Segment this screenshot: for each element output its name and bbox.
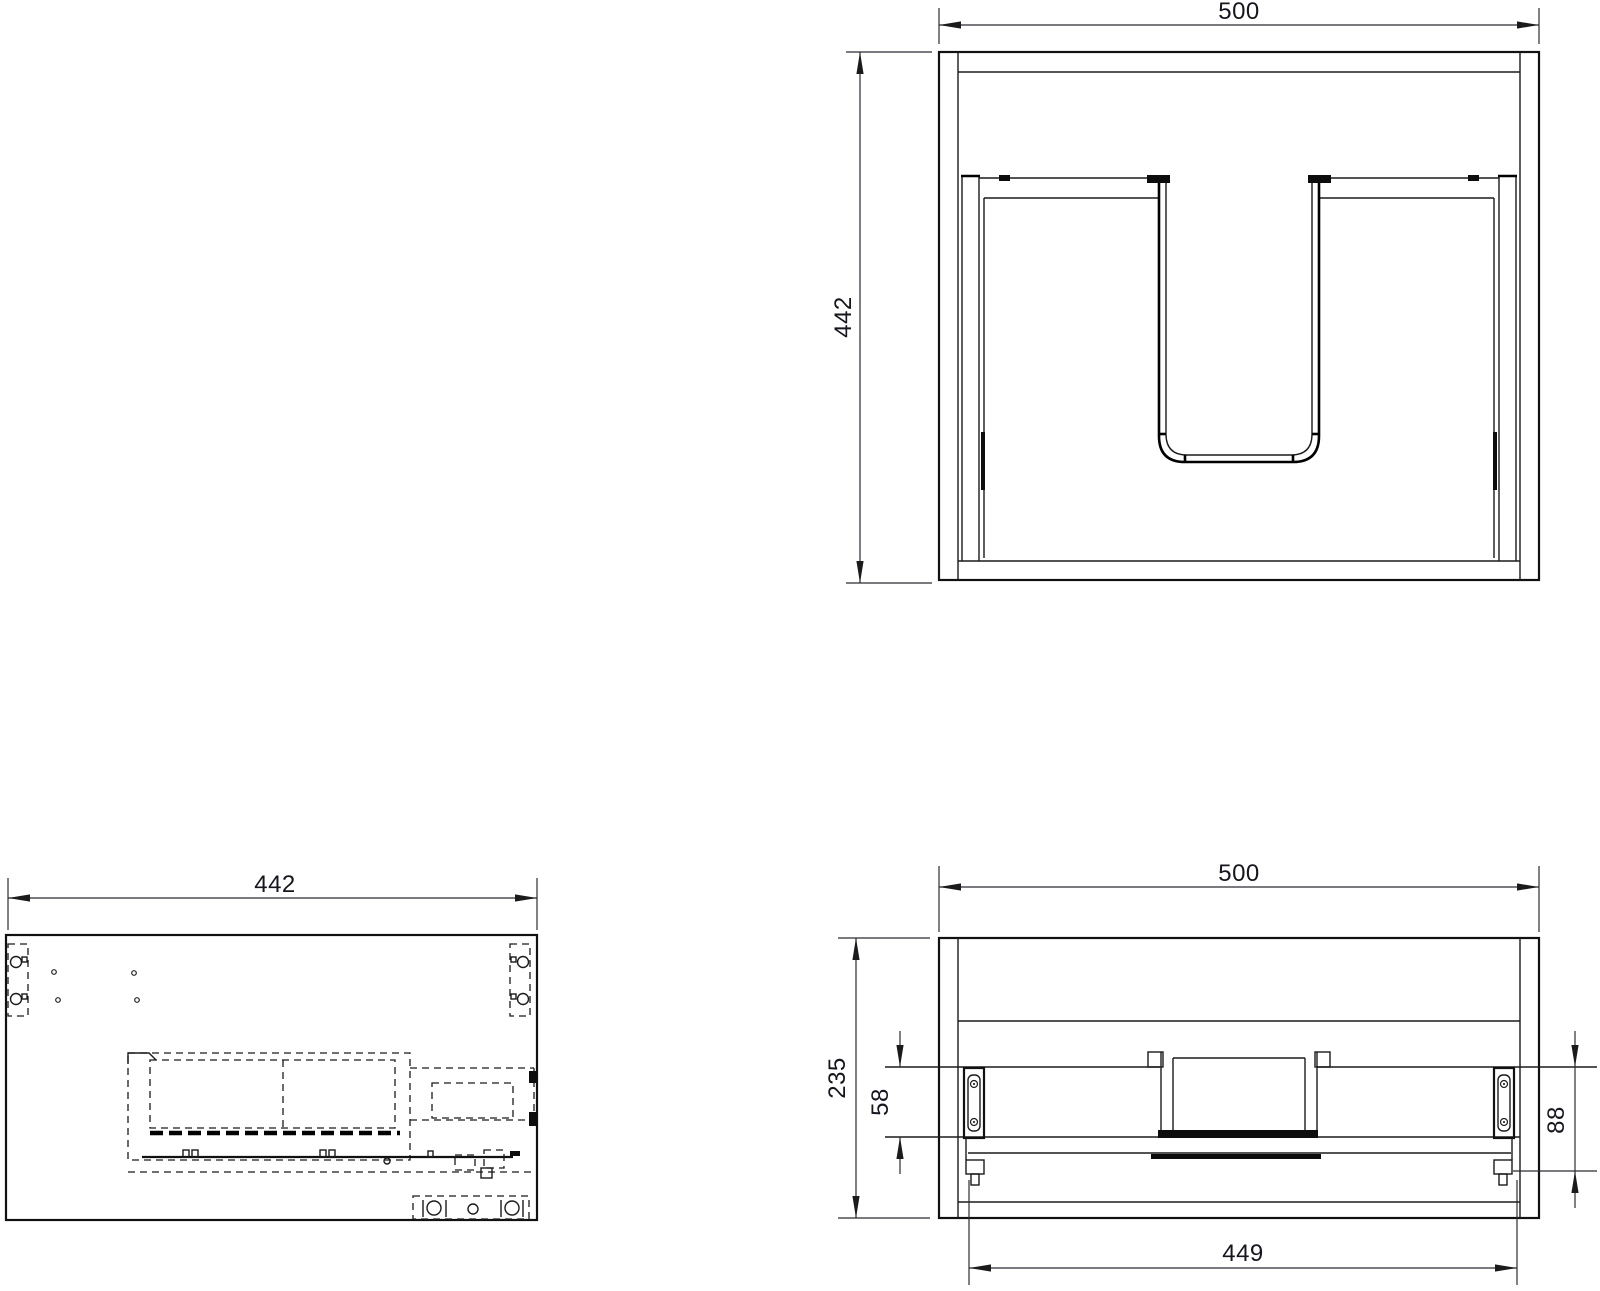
drawer-slide-left [964, 1068, 984, 1185]
dim-plan-width-label: 442 [254, 871, 296, 898]
front-view: 500 442 [830, 0, 1539, 583]
hinge-step-details [455, 1150, 520, 1178]
wall-bracket-right [510, 944, 530, 1016]
dim-lower-width: 500 [939, 860, 1539, 932]
drawer-slide-right [1494, 1068, 1514, 1185]
dim-rail-height: 88 [1513, 1031, 1597, 1208]
technical-drawing-canvas: 500 442 [0, 0, 1600, 1291]
plan-view: 442 [6, 871, 537, 1220]
lower-front-view: 500 235 58 88 449 [824, 860, 1597, 1285]
drawer-top-rail-right [1308, 175, 1499, 198]
bottom-rail [142, 1150, 513, 1164]
dim-slide-offset: 58 [867, 1031, 900, 1174]
lower-front-carcass [939, 938, 1539, 1218]
drawer-frame-right-pillar [1493, 176, 1517, 561]
dim-plan-width: 442 [8, 871, 537, 930]
sink-recess-box [1148, 1052, 1330, 1138]
dim-lower-height-label: 235 [824, 1057, 851, 1099]
technical-drawing-page: 500 442 [0, 0, 1600, 1291]
dim-front-height: 442 [830, 52, 932, 583]
wall-bracket-left [8, 944, 28, 1016]
dim-inner-width: 449 [969, 1180, 1517, 1285]
screw-hole-marks [52, 970, 140, 1003]
dim-slide-offset-label: 58 [867, 1088, 894, 1116]
dim-lower-width-label: 500 [1218, 860, 1260, 887]
slide-rail-lines [885, 1067, 1597, 1159]
bottom-fixing-strip [413, 1196, 529, 1219]
dim-rail-height-label: 88 [1543, 1106, 1570, 1134]
drawer-frame-left-pillar [961, 176, 985, 561]
drawer-top-rail-left [979, 175, 1170, 198]
front-view-carcass [939, 52, 1539, 580]
plan-view-outline [6, 935, 537, 1220]
sink-cutout [1159, 183, 1319, 462]
dim-front-width: 500 [939, 0, 1539, 44]
dim-lower-height: 235 [824, 938, 930, 1218]
dim-front-width-label: 500 [1218, 0, 1260, 25]
dim-inner-width-label: 449 [1222, 1240, 1264, 1267]
dim-front-height-label: 442 [830, 296, 857, 338]
